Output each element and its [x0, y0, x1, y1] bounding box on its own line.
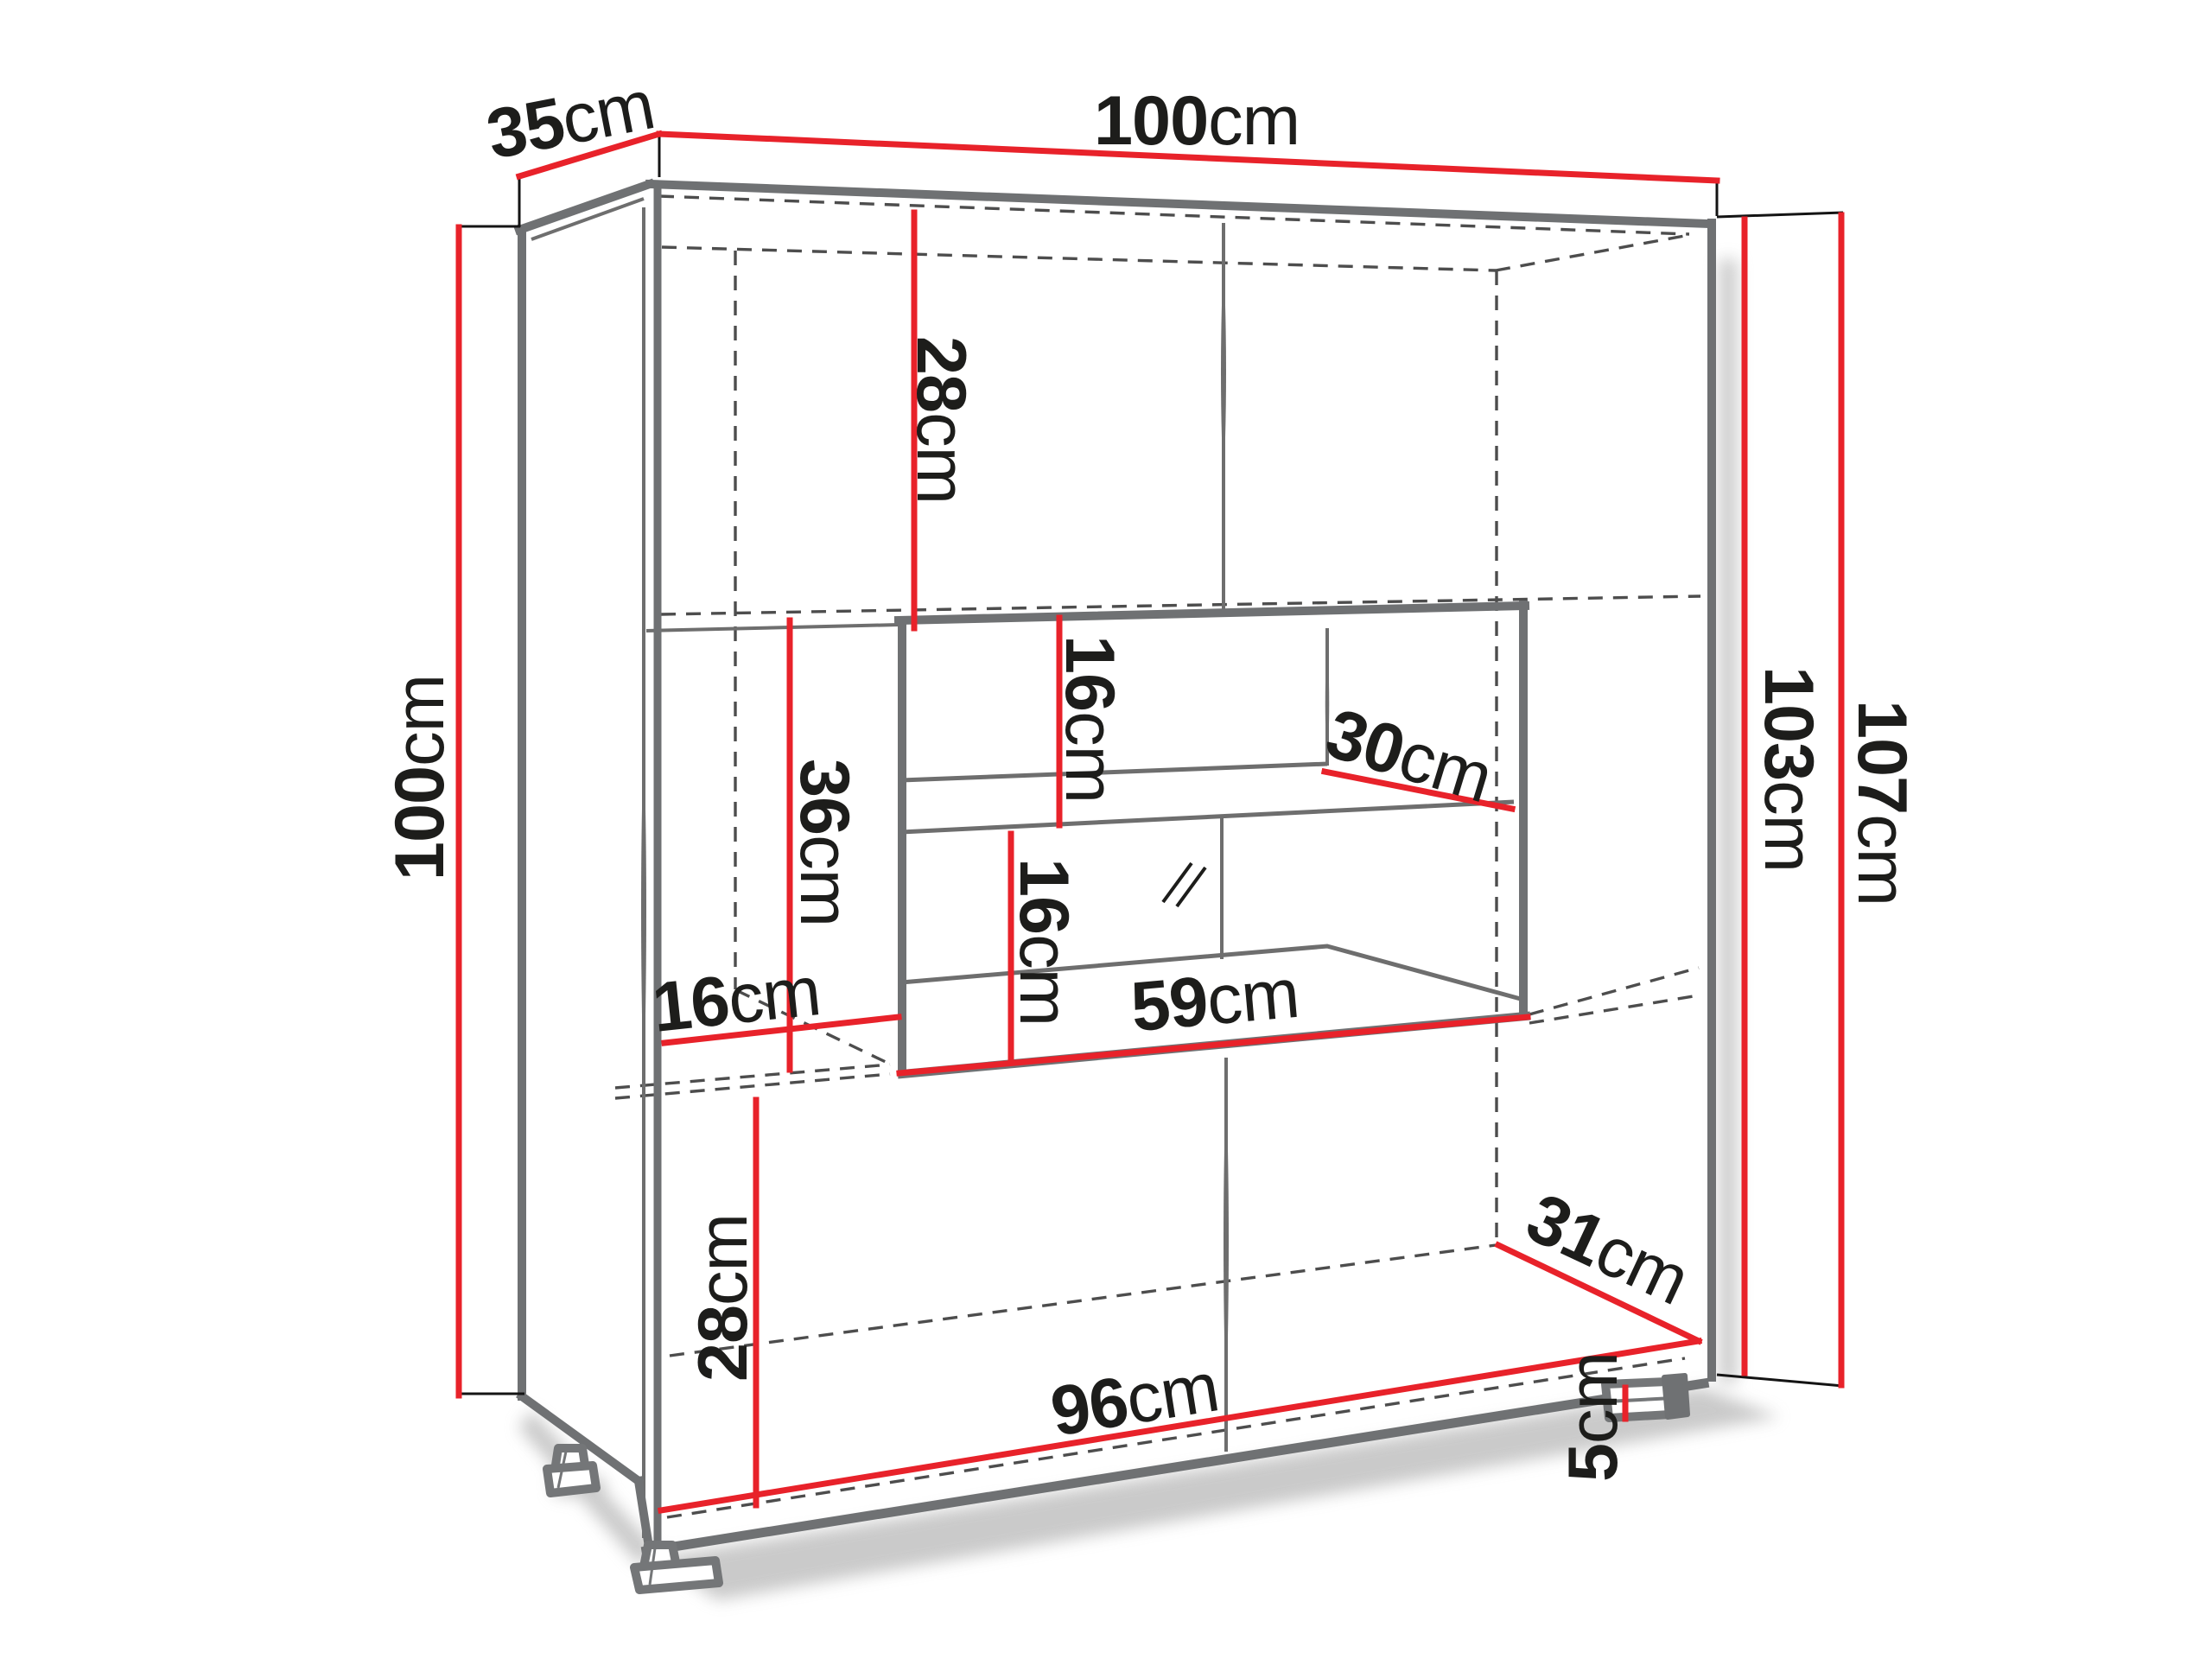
svg-text:103cm: 103cm [1750, 666, 1827, 872]
svg-text:28cm: 28cm [902, 336, 980, 504]
svg-text:107cm: 107cm [1843, 700, 1921, 906]
svg-text:30cm: 30cm [1318, 695, 1501, 818]
svg-text:16cm: 16cm [1051, 635, 1128, 803]
svg-text:28cm: 28cm [684, 1214, 762, 1382]
svg-text:59cm: 59cm [1128, 955, 1301, 1047]
svg-text:5cm: 5cm [1554, 1352, 1632, 1482]
svg-text:16cm: 16cm [649, 952, 823, 1047]
svg-text:35cm: 35cm [480, 66, 660, 174]
svg-text:36cm: 36cm [785, 759, 863, 926]
svg-text:100cm: 100cm [381, 675, 459, 880]
svg-text:16cm: 16cm [1005, 858, 1083, 1026]
svg-text:100cm: 100cm [1094, 82, 1300, 160]
